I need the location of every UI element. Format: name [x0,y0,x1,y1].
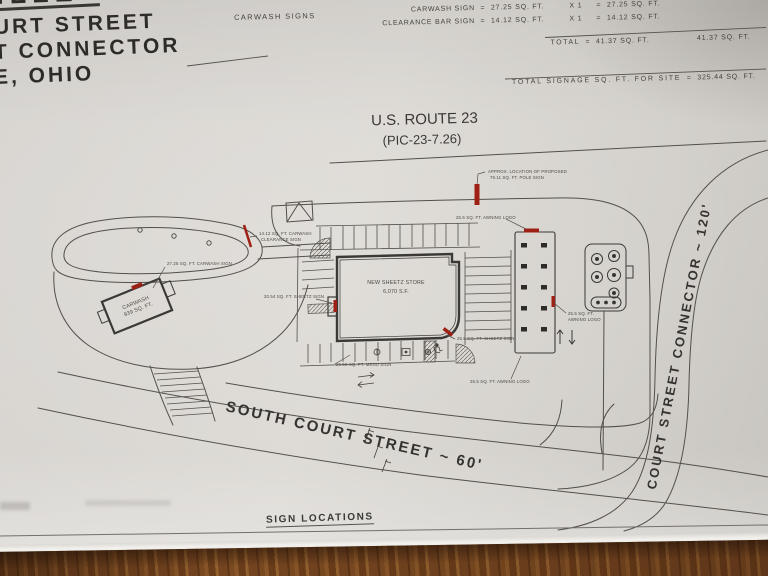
photo-of-site-plan-sheet: ILLE URT STREET T CONNECTOR E, OHIO CARW… [0,0,768,576]
fuel-pumps [521,243,547,332]
awning-logo-right-label-line2: AWNING LOGO [568,317,601,322]
traffic-arrow-icons [358,373,374,388]
sheetz-sign-left-label: 20.54 SQ. FT. SHEETZ SIGN [264,294,324,299]
pole-sign-label-line2: 79.11 SQ. FT. POLE SIGN [490,175,544,180]
sheetz-store-building: NEW SHEETZ STORE 6,070 S.F. [328,254,459,341]
awning-logo-top-label: 25.5 SQ. FT. AWNING LOGO [456,215,516,220]
fuel-canopy [515,229,555,354]
clearance-label-line1: 14.12 SQ. FT. CARWASH [259,231,312,236]
flow-arrow-icons [557,330,575,344]
sheetz-sign-bottom-label: 25.5 SQ. FT. SHEETZ SIGN [457,336,515,341]
pole-sign-label-line1: APPROX. LOCATION OF PROPOSED [488,169,567,174]
carwash-drive-loop [52,217,330,425]
table-rule-lines [187,28,766,80]
store-label-line2: 6,070 S.F. [383,289,409,295]
clearance-label-line2: CLEARANCE SIGN [261,237,301,242]
route23-edge-line [330,141,766,163]
awning-logo-right-label-line1: 25.5 SQ. FT. [568,311,594,316]
entrance-return-east [601,404,615,453]
sign-location-marker-clearance [244,225,251,247]
property-line [603,312,604,470]
connector-west-edge [558,150,768,530]
carwash-sign-label: 27.25 SQ. FT. CARWASH SIGN [167,261,232,266]
vacuum-station-structure [557,244,633,344]
clearance-sign-callout: 14.12 SQ. FT. CARWASH CLEARANCE SIGN [244,225,312,247]
sign-location-marker-awning-right [552,296,556,307]
store-label-line1: NEW SHEETZ STORE [367,280,425,286]
callout-leader-lines [153,219,566,379]
menu-sign-label: 20.50 SQ. FT. MENU SIGN [336,362,392,367]
pole-sign-callout: APPROX. LOCATION OF PROPOSED 79.11 SQ. F… [475,169,567,205]
awning-logo-bottom-label: 25.5 SQ. FT. AWNING LOGO [470,379,530,384]
sign-location-marker-pole-sign [475,184,480,205]
entrance-return-west [540,400,562,445]
sign-location-marker-awning-top [524,229,539,233]
sign-location-marker-sheetz-left [334,300,338,312]
